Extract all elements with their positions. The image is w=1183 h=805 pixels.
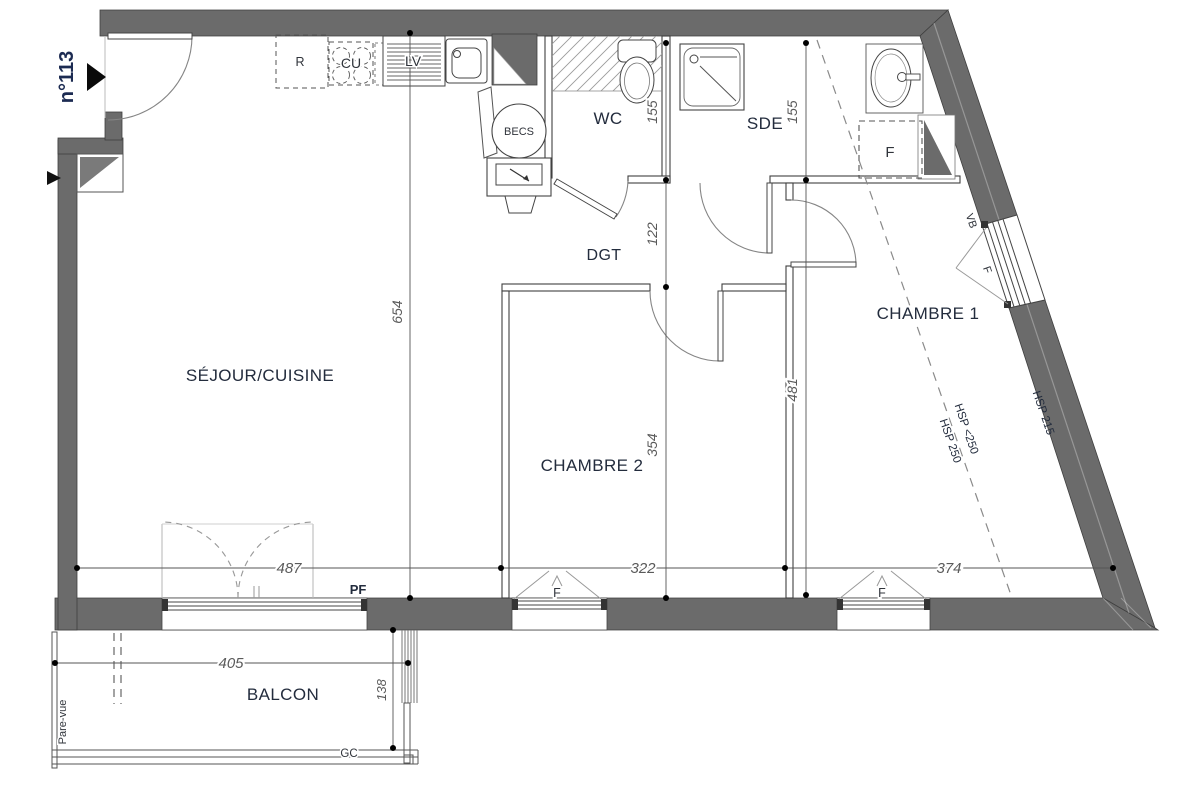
washbasin [866,44,923,113]
sloped-wall-lower [1009,300,1155,628]
dim-155-sde-label: 155 [784,100,800,124]
dim-354-label: 354 [644,433,660,457]
vb-window-label: F [980,265,994,276]
sde-label: SDE [747,114,783,133]
left-wall [58,140,77,630]
balcony-bottom-rail [52,750,418,764]
wc-door [554,179,628,219]
balcon-label: BALCON [247,685,319,704]
sde-closet-label: F [885,144,894,161]
chambre2-label: CHAMBRE 2 [541,456,644,475]
dim-487-label: 487 [276,560,302,577]
kitchen-sink [446,39,487,83]
cooktop-label: CU [341,55,361,71]
vb-shutter-label: VB [963,212,979,230]
dim-481-label: 481 [784,378,800,401]
floor-plan-drawing: n°113 SÉJOUR/CUISINE WC SDE DGT CHAMBRE … [0,0,1183,800]
chambre2-west-wall [502,291,509,598]
unit-number-label: n°113 [56,51,78,103]
dim-405-label: 405 [218,655,244,672]
wc-label: WC [593,109,622,128]
dim-122-label: 122 [644,222,660,246]
water-heater [478,87,546,158]
dim-138-label: 138 [374,678,389,700]
entrance-door [105,33,192,120]
privacy-screen-label: Pare-vue [57,700,69,745]
balcony-joint-dashes [114,633,121,704]
sejour-label: SÉJOUR/CUISINE [186,366,334,385]
toilet [618,40,656,103]
exterior-walls [55,10,1158,630]
balcony-right-rail [404,703,410,763]
chambre1-window [837,571,930,630]
dim-374-label: 374 [936,560,961,577]
dim-155-481 [803,40,809,598]
top-wall [100,10,948,36]
electrical-panel [487,158,551,213]
kitchen-wc-wall [545,36,552,178]
chambre1-window-label: F [878,586,886,600]
chambre2-north-wall-b [722,284,786,291]
chambre1-west-wall [786,266,793,598]
pf-window [162,598,367,630]
entrance-arrow-icon [87,63,106,91]
chambre2-north-wall-a [502,284,650,291]
balcony [52,630,418,768]
fridge-label: R [295,55,304,69]
shower [680,44,744,110]
chambre2-window-label: F [553,586,561,600]
dim-322-label: 322 [630,560,656,577]
water-heater-label: BECS [504,126,534,138]
floor-plan-page: n°113 SÉJOUR/CUISINE WC SDE DGT CHAMBRE … [0,0,1183,800]
dim-654 [407,30,413,601]
chambre2-window [512,571,607,630]
dishwasher-label: LV [405,53,422,69]
dim-balcony-138 [390,627,396,751]
balcony-separator-screen [402,630,417,703]
chambre1-door [791,200,856,267]
chambre1-west-stub [786,183,793,200]
entry-stub-wall [105,112,122,140]
dgt-label: DGT [587,247,622,264]
chambre2-door [650,291,723,361]
railing-label: GC [340,748,357,760]
dim-654-label: 654 [389,300,405,324]
pf-label: PF [350,582,367,597]
filler-strip [375,43,383,85]
chambre1-label: CHAMBRE 1 [877,304,980,323]
sde-door [700,183,772,253]
dim-155-wc-label: 155 [644,100,660,124]
